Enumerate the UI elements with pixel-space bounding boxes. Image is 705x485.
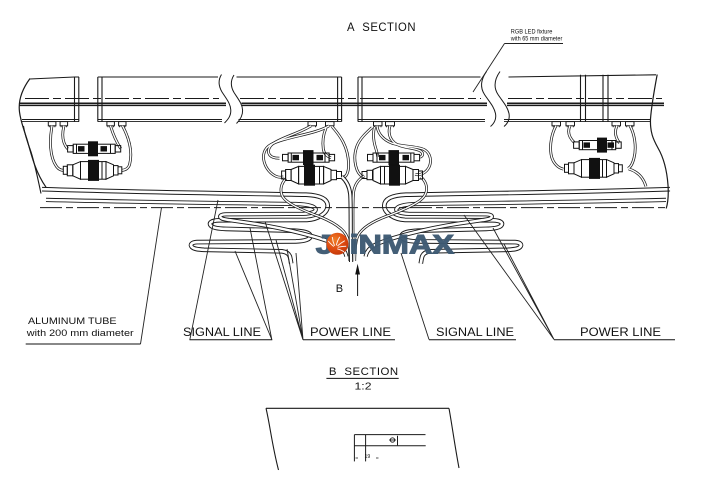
- svg-text:B: B: [336, 283, 343, 295]
- svg-text:POWER LINE: POWER LINE: [580, 327, 661, 339]
- svg-text:1:2: 1:2: [355, 381, 372, 393]
- svg-text:with 200 mm diameter: with 200 mm diameter: [26, 328, 134, 339]
- svg-text:SIGNAL LINE: SIGNAL LINE: [183, 327, 261, 339]
- svg-text:ALUMINUM TUBE: ALUMINUM TUBE: [28, 316, 117, 327]
- svg-text:with 65 mm diameter: with 65 mm diameter: [510, 36, 562, 43]
- svg-text:SIGNAL LINE: SIGNAL LINE: [436, 327, 514, 339]
- svg-text:A SECTION: A SECTION: [347, 22, 416, 34]
- svg-text:19: 19: [365, 454, 371, 460]
- svg-text:RGB LED fixture: RGB LED fixture: [511, 29, 553, 36]
- svg-text:B SECTION: B SECTION: [329, 366, 399, 378]
- svg-text:POWER LINE: POWER LINE: [310, 327, 391, 339]
- svg-text:iNMAX: iNMAX: [350, 230, 455, 260]
